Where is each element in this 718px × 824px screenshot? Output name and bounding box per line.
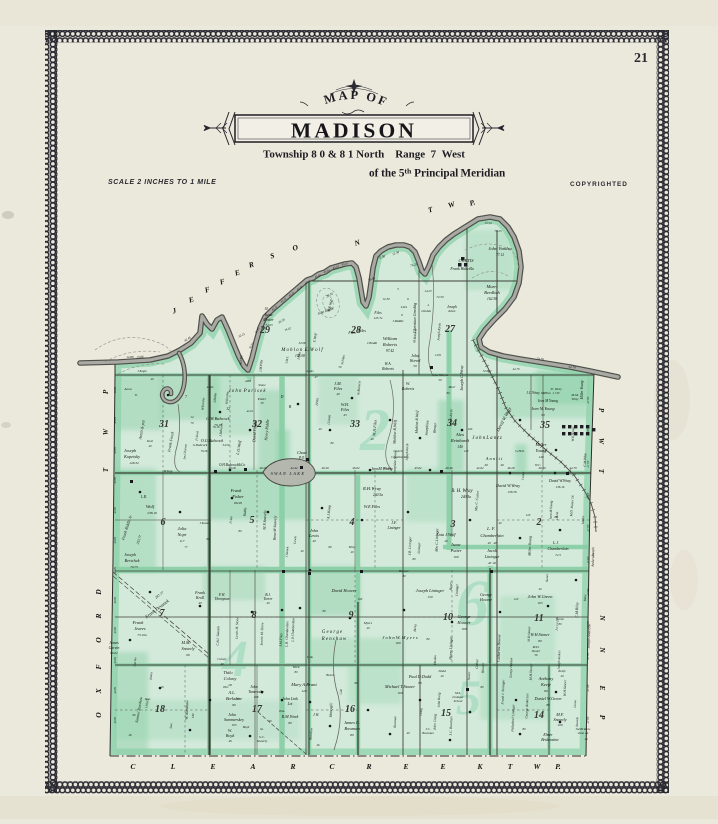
svg-text:Knhe: Knhe [447, 309, 456, 313]
svg-text:48: 48 [129, 733, 133, 737]
svg-text:L.J.: L.J. [552, 540, 559, 545]
svg-text:Michael T.Stoner: Michael T.Stoner [384, 684, 415, 689]
svg-text:4483: 4483 [245, 379, 252, 383]
svg-text:J.C. Bowman: J.C. Bowman [449, 716, 454, 736]
svg-text:Files: Files [347, 331, 356, 335]
svg-text:Daniel W.Green: Daniel W.Green [534, 696, 562, 701]
svg-text:50: 50 [413, 364, 417, 368]
svg-text:43.81: 43.81 [113, 506, 117, 513]
svg-text:40.46: 40.46 [445, 466, 453, 470]
svg-text:Lininger: Lininger [417, 542, 421, 555]
svg-text:Link: Link [306, 655, 313, 659]
svg-text:Thilo: Thilo [223, 670, 233, 675]
svg-text:Jennie M. Stone: Jennie M. Stone [260, 622, 265, 646]
svg-text:28: 28 [228, 683, 232, 687]
svg-text:120: 120 [526, 513, 531, 517]
svg-text:5: 5 [250, 515, 255, 526]
svg-text:21: 21 [634, 51, 648, 66]
svg-text:56: 56 [535, 653, 539, 657]
svg-text:80: 80 [331, 441, 335, 445]
svg-text:80: 80 [544, 689, 548, 693]
svg-text:44.94: 44.94 [207, 385, 214, 389]
svg-text:O: O [94, 637, 103, 643]
svg-text:40: 40 [539, 587, 543, 591]
svg-text:Craig: Craig [419, 708, 423, 716]
svg-text:Alex: Alex [455, 432, 464, 437]
svg-text:Work: Work [293, 665, 300, 669]
svg-text:Iven M.Young: Iven M.Young [530, 406, 554, 411]
svg-text:72.5: 72.5 [555, 553, 561, 557]
svg-text:Joseph: Joseph [124, 448, 137, 453]
svg-text:R. H. Wray: R. H. Wray [450, 489, 473, 494]
svg-text:P.O.: P.O. [298, 456, 305, 460]
svg-text:72.50: 72.50 [436, 295, 444, 299]
svg-text:74.63: 74.63 [265, 323, 273, 327]
svg-text:80: 80 [232, 703, 236, 707]
svg-text:40.40: 40.40 [321, 466, 329, 470]
svg-text:11: 11 [534, 613, 543, 624]
svg-text:10: 10 [443, 612, 453, 623]
svg-text:40: 40 [336, 392, 340, 396]
svg-text:72.88: 72.88 [483, 369, 490, 373]
svg-text:David W.Wray: David W.Wray [495, 483, 520, 488]
svg-text:40: 40 [319, 427, 323, 431]
svg-text:J.R. Lininger: J.R. Lininger [408, 536, 413, 556]
svg-text:Mohlon R.Wolf: Mohlon R.Wolf [392, 419, 398, 445]
svg-text:47: 47 [315, 375, 319, 379]
svg-text:Summerskey: Summerskey [224, 717, 244, 722]
svg-text:160: 160 [453, 555, 458, 559]
svg-text:John: John [250, 685, 257, 689]
svg-text:R: R [365, 762, 371, 771]
svg-text:D: D [94, 589, 103, 596]
svg-text:238.16: 238.16 [147, 511, 157, 515]
svg-text:40: 40 [444, 539, 448, 543]
svg-text:Joseph: Joseph [124, 552, 136, 557]
svg-text:80: 80 [207, 537, 211, 541]
svg-text:E: E [209, 762, 215, 771]
svg-text:P: P [598, 715, 607, 720]
svg-text:Joseph Lininger: Joseph Lininger [416, 588, 445, 593]
svg-text:40.17: 40.17 [586, 525, 590, 532]
svg-text:Boyd: Boyd [226, 733, 235, 738]
svg-text:160: 160 [468, 427, 473, 431]
svg-text:Breig: Breig [413, 624, 417, 632]
svg-text:John Vondra: John Vondra [488, 246, 512, 251]
svg-text:45: 45 [343, 413, 347, 417]
svg-text:40: 40 [484, 463, 488, 467]
svg-text:43.81: 43.81 [113, 386, 117, 393]
svg-text:1435: 1435 [435, 353, 442, 357]
svg-text:P: P [102, 389, 110, 394]
svg-text:43.81: 43.81 [113, 686, 117, 693]
svg-text:40.28: 40.28 [228, 466, 236, 470]
svg-text:C.&J. Tomash: C.&J. Tomash [216, 626, 221, 646]
svg-text:J.F.: J.F. [391, 521, 397, 525]
svg-text:160: 160 [395, 641, 401, 645]
svg-text:Iven M Young: Iven M Young [537, 399, 558, 403]
svg-text:Garvin: Garvin [133, 657, 138, 667]
svg-text:M.M.: M.M. [180, 640, 190, 645]
svg-text:80: 80 [546, 703, 550, 707]
svg-text:Hoover: Hoover [481, 662, 485, 674]
svg-text:George Hanlon: George Hanlon [509, 657, 514, 678]
svg-text:Tamewsky: Tamewsky [248, 690, 264, 694]
svg-text:of the 5th Principal Meridian: of the 5th Principal Meridian [369, 167, 506, 180]
svg-text:J.Kops: J.Kops [137, 369, 147, 373]
svg-text:J.Piltz: J.Piltz [315, 397, 320, 406]
svg-text:Snavely: Snavely [181, 646, 194, 651]
svg-text:140: 140 [191, 713, 195, 718]
svg-text:James C.: James C. [344, 720, 360, 725]
svg-text:31: 31 [158, 419, 169, 430]
svg-text:40: 40 [269, 719, 273, 723]
svg-text:2: 2 [536, 517, 542, 528]
svg-text:6: 6 [161, 517, 166, 528]
svg-text:Joseph Kirsh: Joseph Kirsh [405, 443, 410, 460]
svg-text:40: 40 [149, 444, 153, 448]
svg-text:Hanlon: Hanlon [433, 655, 437, 666]
svg-text:80: 80 [427, 637, 431, 641]
svg-text:John Breig: John Breig [437, 692, 442, 707]
svg-text:7: 7 [185, 395, 187, 399]
svg-text:160: 160 [397, 691, 402, 695]
svg-text:G e o r g e: G e o r g e [322, 630, 343, 635]
svg-text:Hoover: Hoover [479, 597, 492, 602]
svg-text:Wolf: Wolf [146, 504, 155, 509]
svg-text:J.M.Files: J.M.Files [279, 633, 283, 647]
svg-text:Murr: Murr [448, 385, 457, 389]
svg-text:40: 40 [407, 731, 411, 735]
svg-text:Colony: Colony [217, 657, 227, 661]
svg-text:97.42: 97.42 [386, 349, 394, 353]
svg-text:J.Riddle: J.Riddle [392, 319, 404, 323]
svg-text:P.: P. [555, 762, 561, 771]
svg-text:43.81: 43.81 [113, 626, 117, 633]
svg-text:F: F [94, 664, 103, 669]
svg-text:Nopr: Nopr [176, 532, 186, 537]
svg-text:Reinhardt: Reinhardt [450, 438, 470, 443]
svg-text:Berdlich: Berdlich [484, 290, 500, 295]
svg-text:40.17: 40.17 [586, 685, 590, 692]
svg-text:Files: Files [340, 407, 350, 412]
svg-text:12.50: 12.50 [484, 221, 492, 226]
svg-text:Worrel: Worrel [410, 358, 422, 363]
svg-text:Files: Files [373, 311, 382, 315]
svg-text:K: K [476, 762, 483, 771]
svg-text:Anna: Anna [123, 387, 131, 391]
svg-text:T: T [102, 467, 110, 472]
svg-text:Frank: Frank [230, 488, 243, 493]
svg-text:80: 80 [447, 391, 451, 395]
svg-text:Frank Hukvilla: Frank Hukvilla [449, 267, 473, 271]
svg-text:A: A [249, 762, 255, 771]
svg-text:46.26: 46.26 [507, 466, 515, 470]
svg-text:40: 40 [266, 601, 270, 605]
svg-text:80: 80 [295, 670, 299, 674]
svg-text:80: 80 [538, 639, 542, 643]
svg-text:18: 18 [155, 704, 165, 715]
svg-text:Lot: Lot [287, 702, 294, 706]
svg-text:40: 40 [499, 521, 503, 525]
svg-text:160: 160 [461, 627, 466, 631]
svg-text:260.5a: 260.5a [373, 493, 383, 497]
svg-text:Bowman: Bowman [393, 716, 397, 728]
svg-text:School: School [454, 699, 463, 703]
svg-text:Kroll: Kroll [195, 595, 205, 600]
svg-text:W.H.Stoner: W.H.Stoner [563, 679, 568, 696]
svg-text:Garvin: Garvin [109, 646, 120, 650]
svg-text:80: 80 [323, 609, 327, 613]
svg-text:126.50: 126.50 [555, 511, 559, 520]
svg-text:108: 108 [254, 695, 259, 699]
svg-text:J o h n L a n t z: J o h n L a n t z [472, 436, 502, 441]
svg-text:16: 16 [345, 704, 355, 715]
svg-text:103: 103 [232, 723, 237, 727]
svg-text:John Link: John Link [282, 696, 298, 701]
svg-text:Snavely: Snavely [575, 716, 579, 727]
svg-text:A.L.: A.L. [228, 690, 236, 695]
svg-text:79.16: 79.16 [213, 425, 220, 429]
svg-text:N: N [598, 614, 607, 621]
svg-text:George: George [457, 614, 470, 619]
svg-text:David W.Wray: David W.Wray [548, 479, 571, 483]
svg-text:80: 80 [403, 574, 407, 578]
svg-text:3: 3 [450, 519, 456, 530]
svg-text:M.D.Stoner: M.D.Stoner [527, 625, 532, 642]
svg-text:80: 80 [288, 721, 292, 725]
svg-text:40.17: 40.17 [586, 493, 590, 500]
svg-text:J. CW: J. CW [552, 391, 560, 395]
svg-text:Stoner: Stoner [545, 573, 549, 582]
svg-text:Elmer: Elmer [542, 733, 553, 737]
svg-text:Files: Files [357, 329, 366, 333]
svg-text:Ran.: Ran. [144, 697, 151, 701]
svg-text:G.H.D.: G.H.D. [515, 449, 524, 453]
svg-text:Paul D.Dodd: Paul D.Dodd [408, 674, 432, 679]
svg-text:66: 66 [186, 653, 190, 657]
svg-text:Fisher: Fisher [231, 494, 244, 499]
svg-text:44: 44 [585, 737, 589, 741]
svg-text:50: 50 [439, 378, 443, 382]
svg-text:W: W [597, 438, 605, 445]
svg-text:W. Ranshaw: W. Ranshaw [184, 700, 190, 720]
svg-text:50: 50 [339, 365, 343, 369]
svg-text:46.62: 46.62 [352, 466, 360, 470]
svg-text:Christian Groshig: Christian Groshig [412, 303, 417, 333]
svg-text:74.25: 74.25 [494, 229, 502, 233]
svg-text:M o h l o n E. W o l f: M o h l o n E. W o l f [280, 348, 323, 353]
svg-text:14.25: 14.25 [424, 289, 432, 293]
svg-text:Lewis: Lewis [293, 535, 298, 545]
svg-text:Joseph Anders: Joseph Anders [557, 650, 562, 670]
svg-text:Brant: Brant [326, 673, 334, 677]
svg-text:43.81: 43.81 [113, 446, 117, 453]
svg-text:D: D [280, 395, 284, 399]
svg-text:Joseph C.Wray: Joseph C.Wray [459, 365, 464, 390]
svg-text:6: 6 [401, 313, 403, 317]
svg-text:42.79: 42.79 [568, 365, 576, 370]
svg-text:80: 80 [481, 685, 485, 689]
svg-text:M.H.Stoner: M.H.Stoner [529, 663, 534, 681]
svg-text:40.17: 40.17 [586, 621, 590, 628]
svg-text:40.17: 40.17 [586, 717, 590, 724]
svg-text:Isaac: Isaac [450, 542, 461, 547]
svg-text:Lewis H. Stone: Lewis H. Stone [235, 617, 240, 640]
svg-text:80: 80 [523, 727, 527, 731]
svg-text:Liles: Liles [400, 305, 408, 309]
svg-text:43.81: 43.81 [113, 476, 117, 483]
svg-text:44.42: 44.42 [290, 466, 298, 470]
svg-text:P: P [597, 408, 605, 413]
svg-text:Miller Young: Miller Young [580, 380, 584, 400]
svg-text:136.56: 136.56 [507, 490, 517, 494]
svg-text:T: T [508, 762, 513, 771]
svg-text:43.81: 43.81 [113, 566, 117, 573]
svg-text:40.26: 40.26 [259, 466, 267, 470]
svg-text:X: X [94, 688, 103, 695]
svg-text:40.17: 40.17 [586, 397, 590, 404]
svg-text:40.17: 40.17 [586, 429, 590, 436]
svg-text:acres: acres [247, 409, 254, 413]
svg-text:T: T [597, 469, 605, 474]
svg-text:stine 44: stine 44 [578, 731, 589, 735]
svg-text:140: 140 [457, 445, 463, 449]
svg-text:J.Kubla: J.Kubla [421, 309, 431, 313]
svg-text:R.M.Work: R.M.Work [281, 714, 299, 719]
svg-text:162.58: 162.58 [487, 297, 497, 301]
svg-text:Thompson: Thompson [215, 597, 230, 601]
svg-text:70: 70 [191, 421, 195, 425]
svg-text:40: 40 [151, 377, 155, 381]
svg-text:Files: Files [333, 386, 343, 391]
svg-text:120: 120 [301, 689, 307, 693]
svg-text:Hoover: Hoover [398, 569, 410, 573]
svg-text:40: 40 [161, 685, 165, 689]
svg-text:12.86: 12.86 [126, 355, 134, 359]
svg-text:40 40: 40 40 [488, 541, 497, 545]
svg-text:R e n s h a w: R e n s h a w [321, 637, 347, 642]
svg-text:80: 80 [418, 681, 422, 685]
svg-text:14: 14 [534, 710, 544, 721]
svg-text:Bridenstine: Bridenstine [541, 738, 559, 742]
svg-text:M.Kop: M.Kop [163, 469, 173, 473]
svg-text:79.28: 79.28 [201, 449, 208, 453]
svg-text:W.A.: W.A. [384, 362, 391, 366]
svg-text:30: 30 [261, 401, 265, 405]
svg-text:Bowman: Bowman [344, 726, 360, 731]
svg-text:8: 8 [252, 610, 257, 621]
svg-text:80: 80 [237, 697, 241, 701]
svg-text:Berkshire: Berkshire [226, 696, 242, 701]
svg-text:150: 150 [427, 595, 433, 599]
svg-text:40: 40 [367, 626, 371, 630]
svg-text:L: L [170, 762, 176, 771]
svg-text:80: 80 [239, 529, 243, 533]
svg-text:Julia: Julia [178, 526, 188, 531]
svg-text:R: R [289, 762, 295, 771]
svg-text:Anderson: Anderson [591, 553, 596, 568]
svg-text:80: 80 [413, 557, 417, 561]
svg-text:40: 40 [312, 539, 316, 543]
svg-text:N: N [598, 646, 607, 653]
svg-text:33: 33 [349, 419, 360, 430]
svg-text:17: 17 [252, 704, 263, 715]
svg-text:Miller: Miller [581, 515, 585, 525]
svg-text:Green: Green [573, 700, 577, 708]
svg-text:Snavely: Snavely [553, 717, 566, 722]
svg-text:79.75: 79.75 [130, 565, 138, 569]
svg-text:MADISON: MADISON [291, 119, 417, 143]
svg-text:E: E [598, 684, 607, 690]
svg-text:Stoner: Stoner [467, 671, 471, 680]
svg-text:J.W.: J.W. [313, 713, 319, 717]
svg-text:Henrygill: Henrygill [329, 703, 334, 719]
svg-text:12: 12 [226, 407, 230, 411]
svg-text:James: James [109, 641, 119, 645]
svg-text:W.H.Stoner: W.H.Stoner [530, 632, 550, 637]
svg-text:12: 12 [190, 415, 194, 419]
svg-text:128.32: 128.32 [129, 461, 139, 465]
svg-text:Lewis: Lewis [308, 533, 319, 538]
svg-text:Young: Young [536, 448, 548, 453]
svg-text:80: 80 [355, 681, 359, 685]
svg-text:77: 77 [185, 545, 189, 549]
svg-text:Lininger: Lininger [484, 554, 500, 559]
svg-text:John Craig: John Craig [433, 714, 438, 731]
svg-text:117: 117 [180, 539, 185, 543]
svg-text:Roberts: Roberts [401, 386, 415, 391]
svg-text:10: 10 [264, 307, 268, 311]
svg-text:13.86: 13.86 [136, 355, 144, 360]
svg-text:Roberts: Roberts [381, 367, 394, 371]
svg-text:W.E.Files: W.E.Files [364, 504, 380, 509]
svg-text:Wray: Wray [571, 397, 579, 401]
svg-text:J o h n W. M y e r s: J o h n W. M y e r s [382, 635, 418, 640]
svg-text:Sn.: Sn. [260, 727, 264, 731]
svg-text:M.F.Snavely: M.F.Snavely [262, 510, 268, 531]
svg-text:90: 90 [541, 413, 545, 417]
svg-text:80: 80 [329, 545, 333, 549]
svg-text:40.29: 40.29 [538, 466, 546, 470]
svg-text:Frank: Frank [132, 620, 145, 625]
svg-text:John W.Green: John W.Green [528, 594, 554, 599]
svg-text:40: 40 [500, 463, 504, 467]
svg-text:40.17: 40.17 [586, 461, 590, 468]
svg-text:86.90: 86.90 [234, 501, 242, 505]
svg-text:Stone: Stone [258, 383, 266, 387]
svg-text:Custer: Custer [521, 471, 526, 481]
svg-text:43.81: 43.81 [113, 716, 117, 723]
svg-text:Jeares: Jeares [149, 671, 154, 680]
svg-text:Mary A.Brant: Mary A.Brant [290, 682, 317, 687]
svg-text:Iven M.Young: Iven M.Young [549, 500, 554, 520]
svg-text:40: 40 [351, 550, 355, 554]
svg-text:J.Boddl: J.Boddl [367, 341, 377, 345]
svg-text:Murri: Murri [486, 284, 499, 289]
svg-text:E: E [402, 762, 408, 771]
svg-text:Lininger: Lininger [455, 583, 459, 597]
svg-text:Cathar: Cathar [475, 658, 479, 669]
svg-text:R: R [94, 613, 103, 619]
svg-text:Kopetsky: Kopetsky [123, 454, 140, 459]
svg-text:54.50: 54.50 [223, 443, 230, 447]
svg-text:Kral: Kral [146, 439, 153, 443]
svg-text:W: W [102, 428, 110, 435]
svg-text:W.R.Stoner: W.R.Stoner [571, 426, 576, 442]
svg-text:T.M.L: T.M.L [285, 356, 290, 364]
svg-text:6: 6 [407, 297, 409, 301]
